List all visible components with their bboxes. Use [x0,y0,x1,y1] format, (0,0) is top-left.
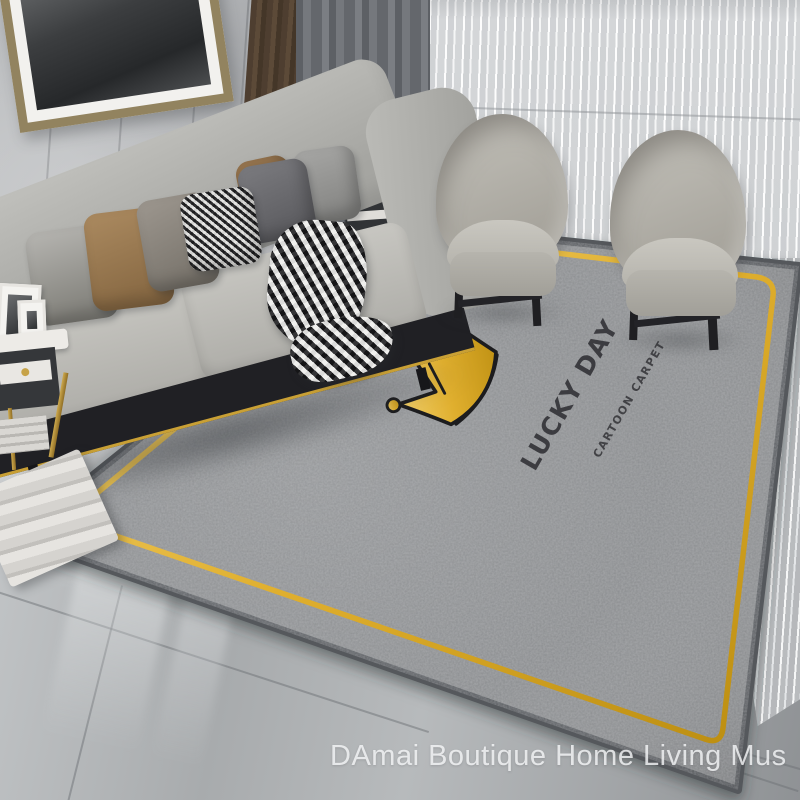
pillow-checkered [178,185,263,274]
chair-seat-front [450,252,556,296]
magazine-stack-shelf [0,415,50,454]
side-table-body [0,347,61,411]
photo [27,311,38,329]
living-room-product-photo: LUCKY DAY CARTOON CARPET [0,0,800,800]
sofa-leg [416,367,431,391]
chair-seat-front [626,270,736,316]
watermark-text: DAmai Boutique Home Living Mus [330,740,800,773]
